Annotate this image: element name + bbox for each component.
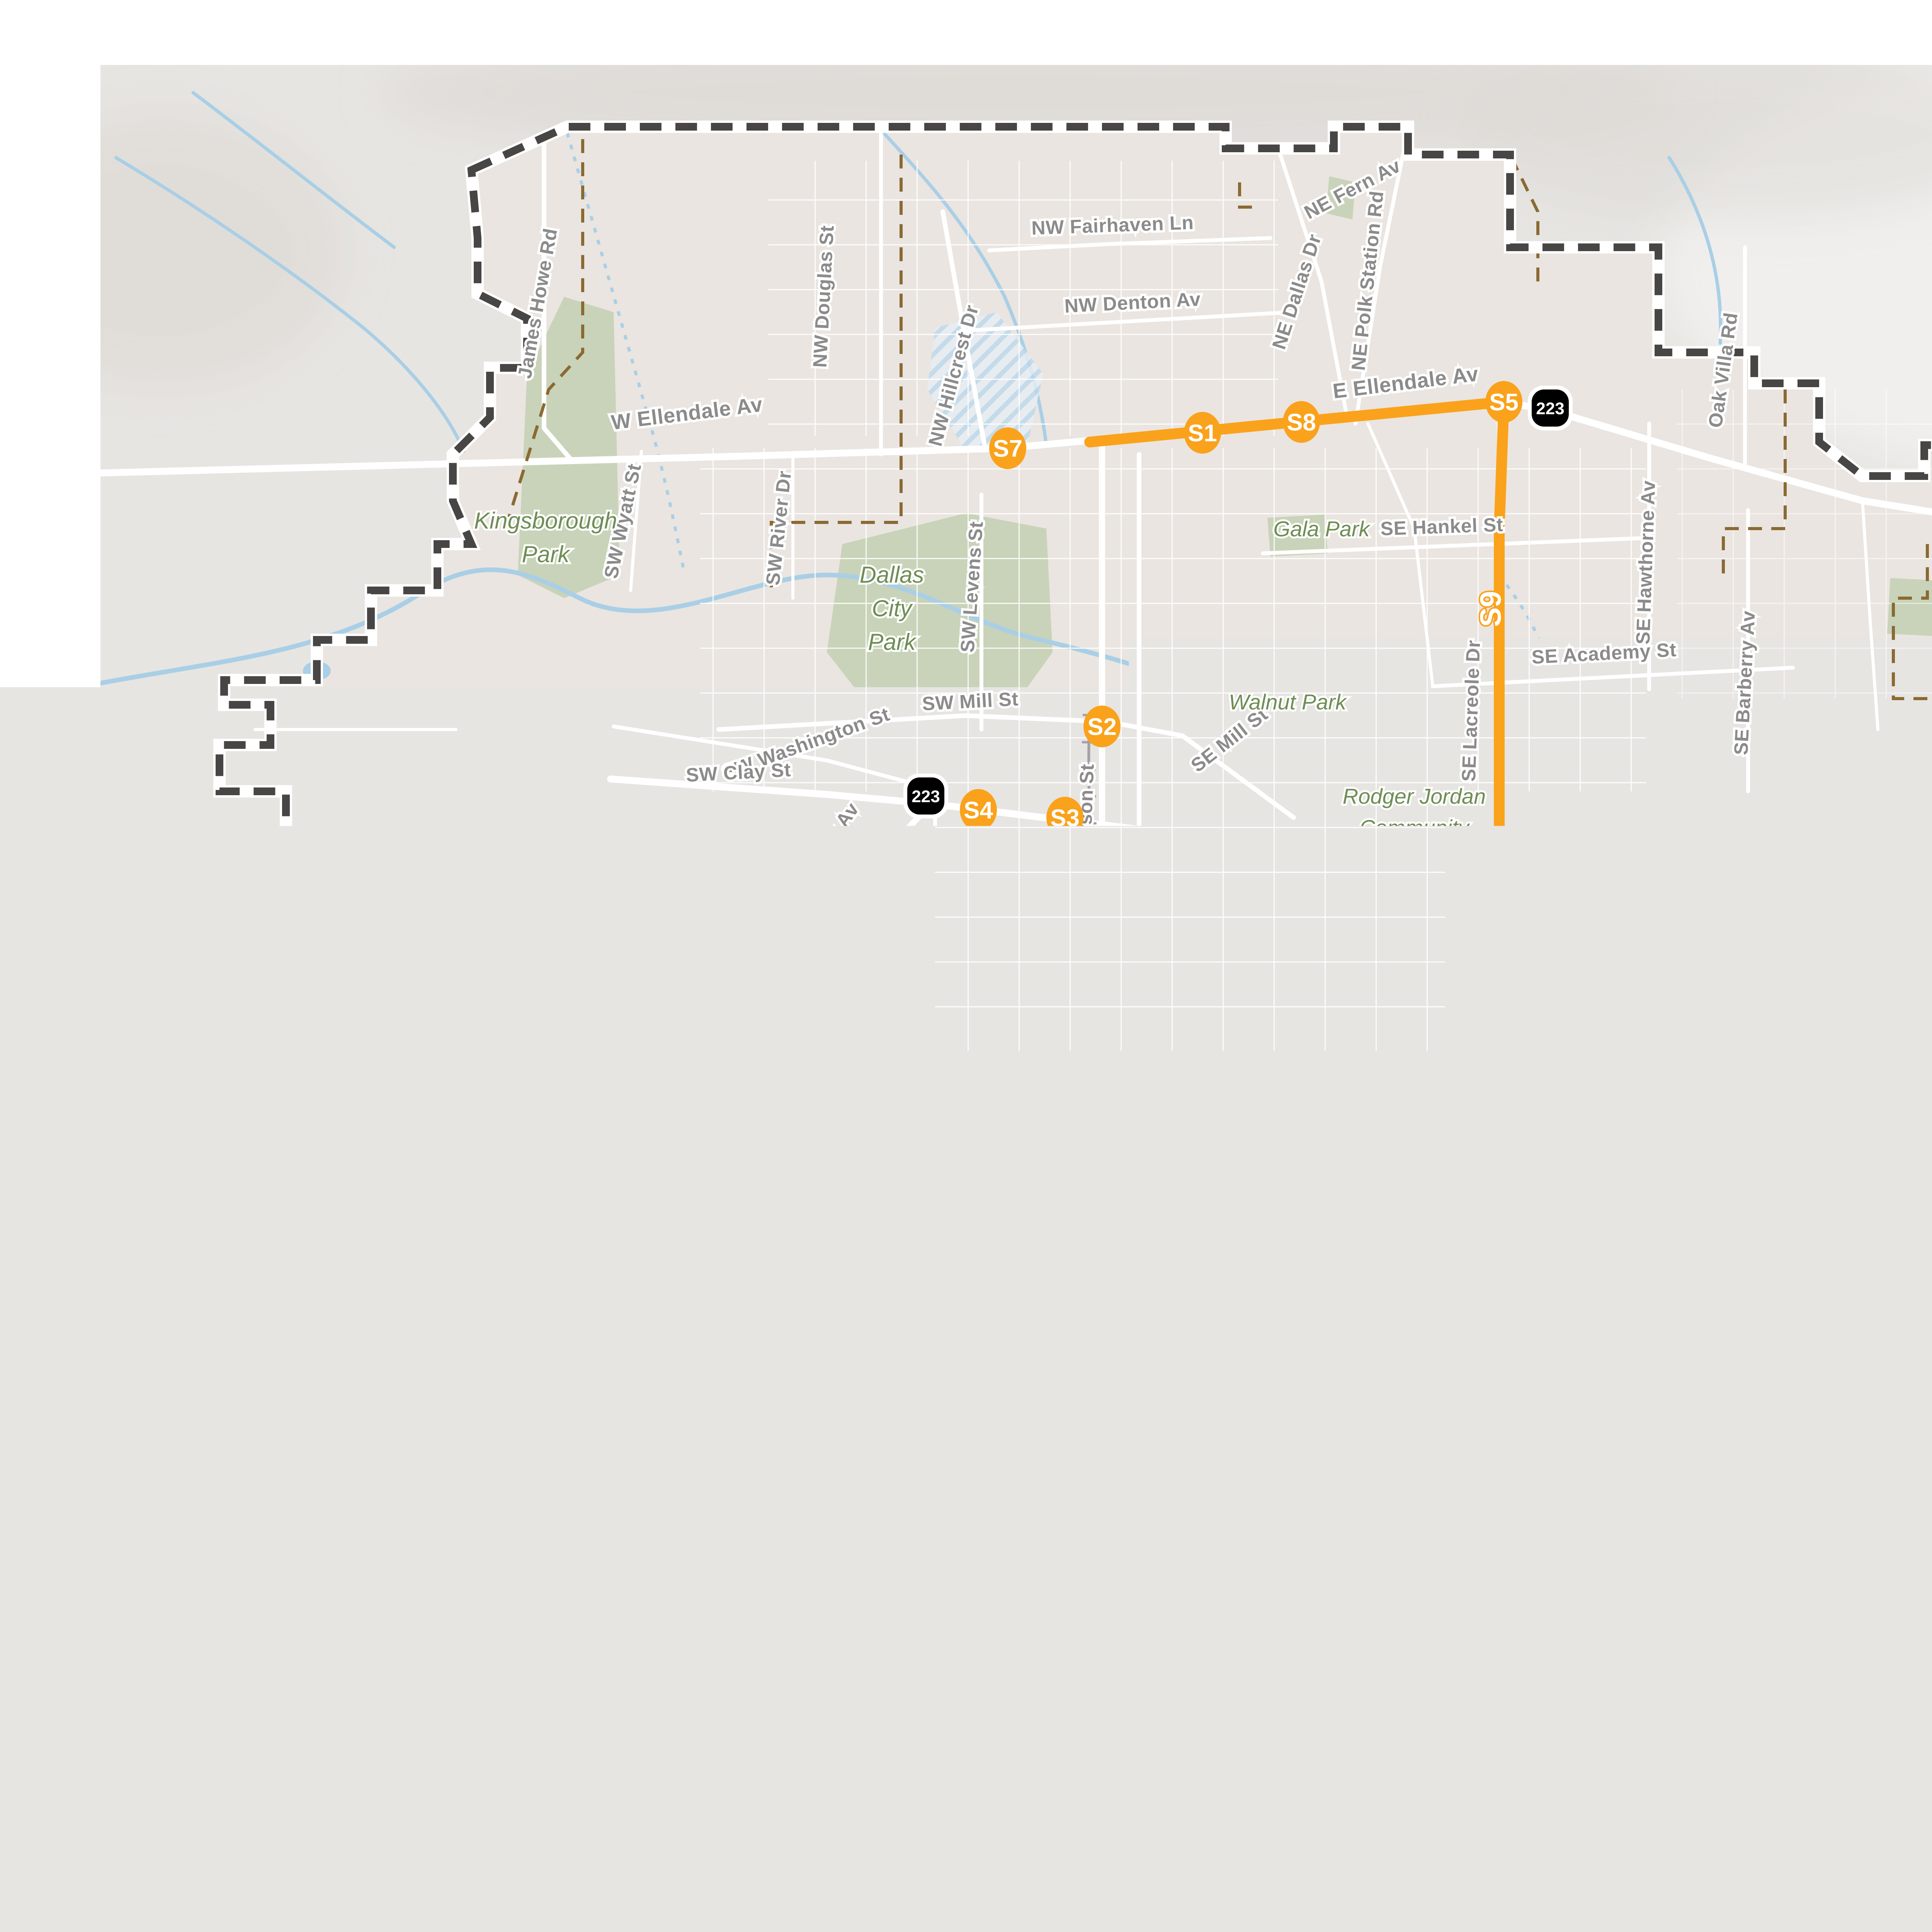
safety-marker-S5[interactable]: S5 [1485,381,1522,423]
highway-shield-223: 223 [903,774,948,818]
logo-name: KITTELSON [219,1762,496,1808]
scale-tick-0: 0 [1878,1481,1892,1509]
park-label: Kingsborough [474,508,617,534]
map-title: Proposed Safety Alternative Locations Ci… [1697,1759,1932,1858]
legend-label-safety-line: Safety Alternative Location [219,1489,540,1522]
legend-item-railroad[interactable]: Railroad [677,1487,892,1524]
legend-item-parks[interactable]: Parks [1182,1476,1375,1538]
park-label: Park [522,541,570,567]
railroad-swatch [677,1487,773,1524]
legend-label-ugb: Urban Growth Boundary [791,1556,1083,1588]
highway-shield-223: 223 [1528,386,1573,430]
safety-marker-label-S4[interactable]: S4 [964,797,993,824]
safety-marker-label-S1[interactable]: S1 [1188,420,1217,447]
map-canvas: 223223223 James Howe RdNW Douglas StNW H… [100,65,1932,1414]
legend-label-safety-point: Safety Alternative Location [219,1556,540,1588]
safety-marker-label-S7[interactable]: S7 [993,435,1022,462]
legend-item-city-limits[interactable]: City Limits [677,1604,916,1669]
safety-marker-label-S2[interactable]: S2 [1087,714,1117,740]
figure-page: 223223223 James Howe RdNW Douglas StNW H… [0,0,1932,1932]
highway-shield-223: 223 [678,1281,723,1325]
street-label: SE Hankel St [1380,514,1503,539]
highway-shield-label: 223 [686,1294,714,1313]
street-label: Main St [1034,893,1061,967]
legend-divider [100,1454,1932,1459]
segment-label-S9: S9 [1475,591,1507,627]
park-label: Community [1359,815,1470,840]
safety-point-swatch [108,1549,201,1595]
park-label: Park [1392,847,1437,871]
highway-shield-label: 223 [912,787,940,806]
ugb-swatch [677,1539,773,1604]
safety-marker-S7[interactable]: S7 [989,427,1026,469]
scale-bar [1870,1512,1932,1564]
safety-marker-S8[interactable]: S8 [1283,401,1320,443]
kittelson-logo-icon [121,1753,198,1855]
map[interactable]: 223223223 James Howe RdNW Douglas StNW H… [100,65,1932,1414]
park-label: Rodger Jordan [1343,784,1486,808]
city-limits-swatch [677,1604,773,1669]
highway-shield-label: 223 [1536,399,1564,418]
park-label: Gala Park [1274,517,1371,541]
kittelson-logo: KITTELSON & ASSOCIATES [121,1753,496,1855]
safety-marker-S3[interactable]: S3 [1046,797,1083,838]
legend-label-parks: Parks [1306,1491,1375,1523]
safety-marker-S1[interactable]: S1 [1184,412,1221,454]
safety-line-swatch [108,1487,201,1524]
legend-item-ugb[interactable]: Urban Growth Boundary [677,1539,1083,1604]
logo-subtitle: & ASSOCIATES [219,1808,496,1845]
parks-swatch [1182,1476,1287,1538]
legend-label-city-limits: City Limits [791,1621,916,1653]
legend-item-safety-point[interactable]: Safety Alternative Location [108,1549,540,1595]
legend-item-safety-line[interactable]: Safety Alternative Location [108,1487,540,1524]
legend-label-railroad: Railroad [791,1489,892,1522]
map-title-line2: City of Dallas, Oregon [1697,1808,1932,1858]
park-label: City [872,595,913,621]
map-title-line1: Proposed Safety Alternative Locations [1697,1759,1932,1808]
safety-marker-label-S5[interactable]: S5 [1489,389,1519,416]
park-label: Walnut Park [1229,690,1347,714]
safety-marker-label-S8[interactable]: S8 [1287,409,1316,436]
park-label: Dallas [860,562,924,588]
park-label: Park [868,629,917,655]
safety-marker-S2[interactable]: S2 [1083,706,1121,747]
safety-marker-label-S3[interactable]: S3 [1050,805,1080,832]
safety-marker-S4[interactable]: S4 [960,789,997,831]
